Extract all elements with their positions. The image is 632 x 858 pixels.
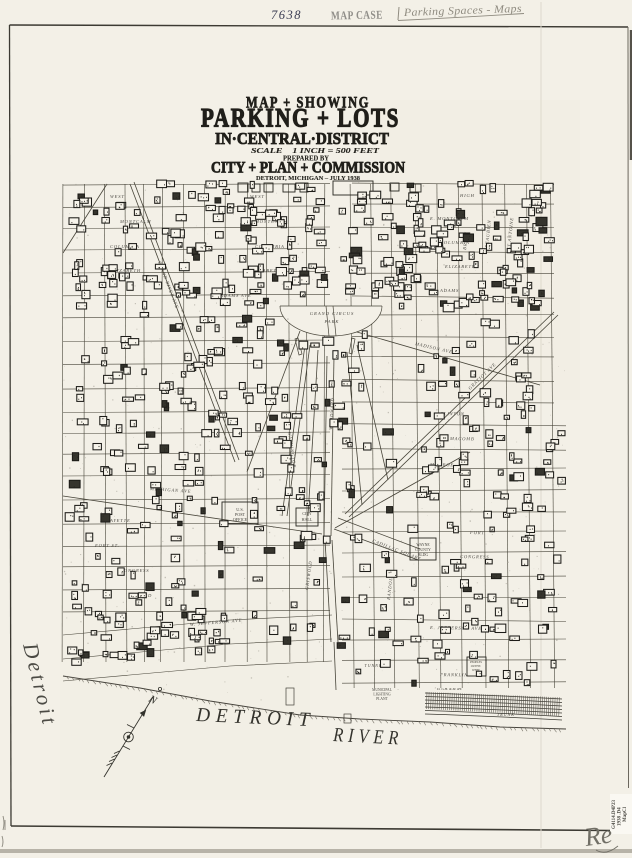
svg-text:RIVER: RIVER <box>332 724 404 750</box>
svg-text:ADAMS AVE: ADAMS AVE <box>219 293 252 298</box>
svg-text:MapCl: MapCl <box>623 806 628 822</box>
svg-text:SCALE 1 INCH = 500 FEET: SCALE 1 INCH = 500 FEET <box>251 147 380 155</box>
svg-text:MUNICIPAL: MUNICIPAL <box>372 688 392 692</box>
svg-text:CITY + PLAN + COMMISSION: CITY + PLAN + COMMISSION <box>211 160 405 177</box>
svg-text:COUNTY: COUNTY <box>415 548 431 552</box>
svg-text:OUTFIT.: OUTFIT. <box>471 665 482 668</box>
svg-text:7638: 7638 <box>271 8 302 22</box>
svg-text:HALL: HALL <box>302 517 313 522</box>
svg-text:1938 .D4: 1938 .D4 <box>618 807 623 826</box>
svg-text:ELIZABETH: ELIZABETH <box>444 264 476 269</box>
svg-text:GRAND CIRCUS: GRAND CIRCUS <box>310 311 355 316</box>
svg-text:PEOPLES: PEOPLES <box>470 661 482 664</box>
svg-text:HIGH: HIGH <box>459 193 475 198</box>
svg-text:IN·CENTRAL·DISTRICT: IN·CENTRAL·DISTRICT <box>215 129 389 148</box>
svg-text:FORT ST.: FORT ST. <box>94 543 120 548</box>
svg-text:FRANKLIN: FRANKLIN <box>439 672 468 678</box>
svg-text:MONTCALM: MONTCALM <box>119 219 152 224</box>
svg-text:Re: Re <box>582 819 614 852</box>
svg-text:MACOMB: MACOMB <box>449 436 475 441</box>
svg-text:MAP CASE: MAP CASE <box>331 8 383 23</box>
svg-text:TRUNK: TRUNK <box>497 712 515 717</box>
svg-text:PLANT: PLANT <box>376 697 388 701</box>
svg-text:OFFICE: OFFICE <box>233 517 248 522</box>
svg-text:PARK: PARK <box>324 319 340 324</box>
svg-text:FORT: FORT <box>469 530 485 535</box>
svg-text:WEST: WEST <box>110 194 125 199</box>
svg-text:D. G.H. & M. RY.: D. G.H. & M. RY. <box>436 687 462 691</box>
svg-text:CONGRESS: CONGRESS <box>460 554 489 560</box>
svg-text:WAYNE: WAYNE <box>416 543 430 547</box>
svg-text:LIGHTING: LIGHTING <box>373 693 391 697</box>
svg-text:E. JEFFERSON AVE: E. JEFFERSON AVE <box>429 625 482 631</box>
svg-text:G4114.D4P23: G4114.D4P23 <box>612 799 617 829</box>
svg-text:ADAMS: ADAMS <box>439 288 459 293</box>
